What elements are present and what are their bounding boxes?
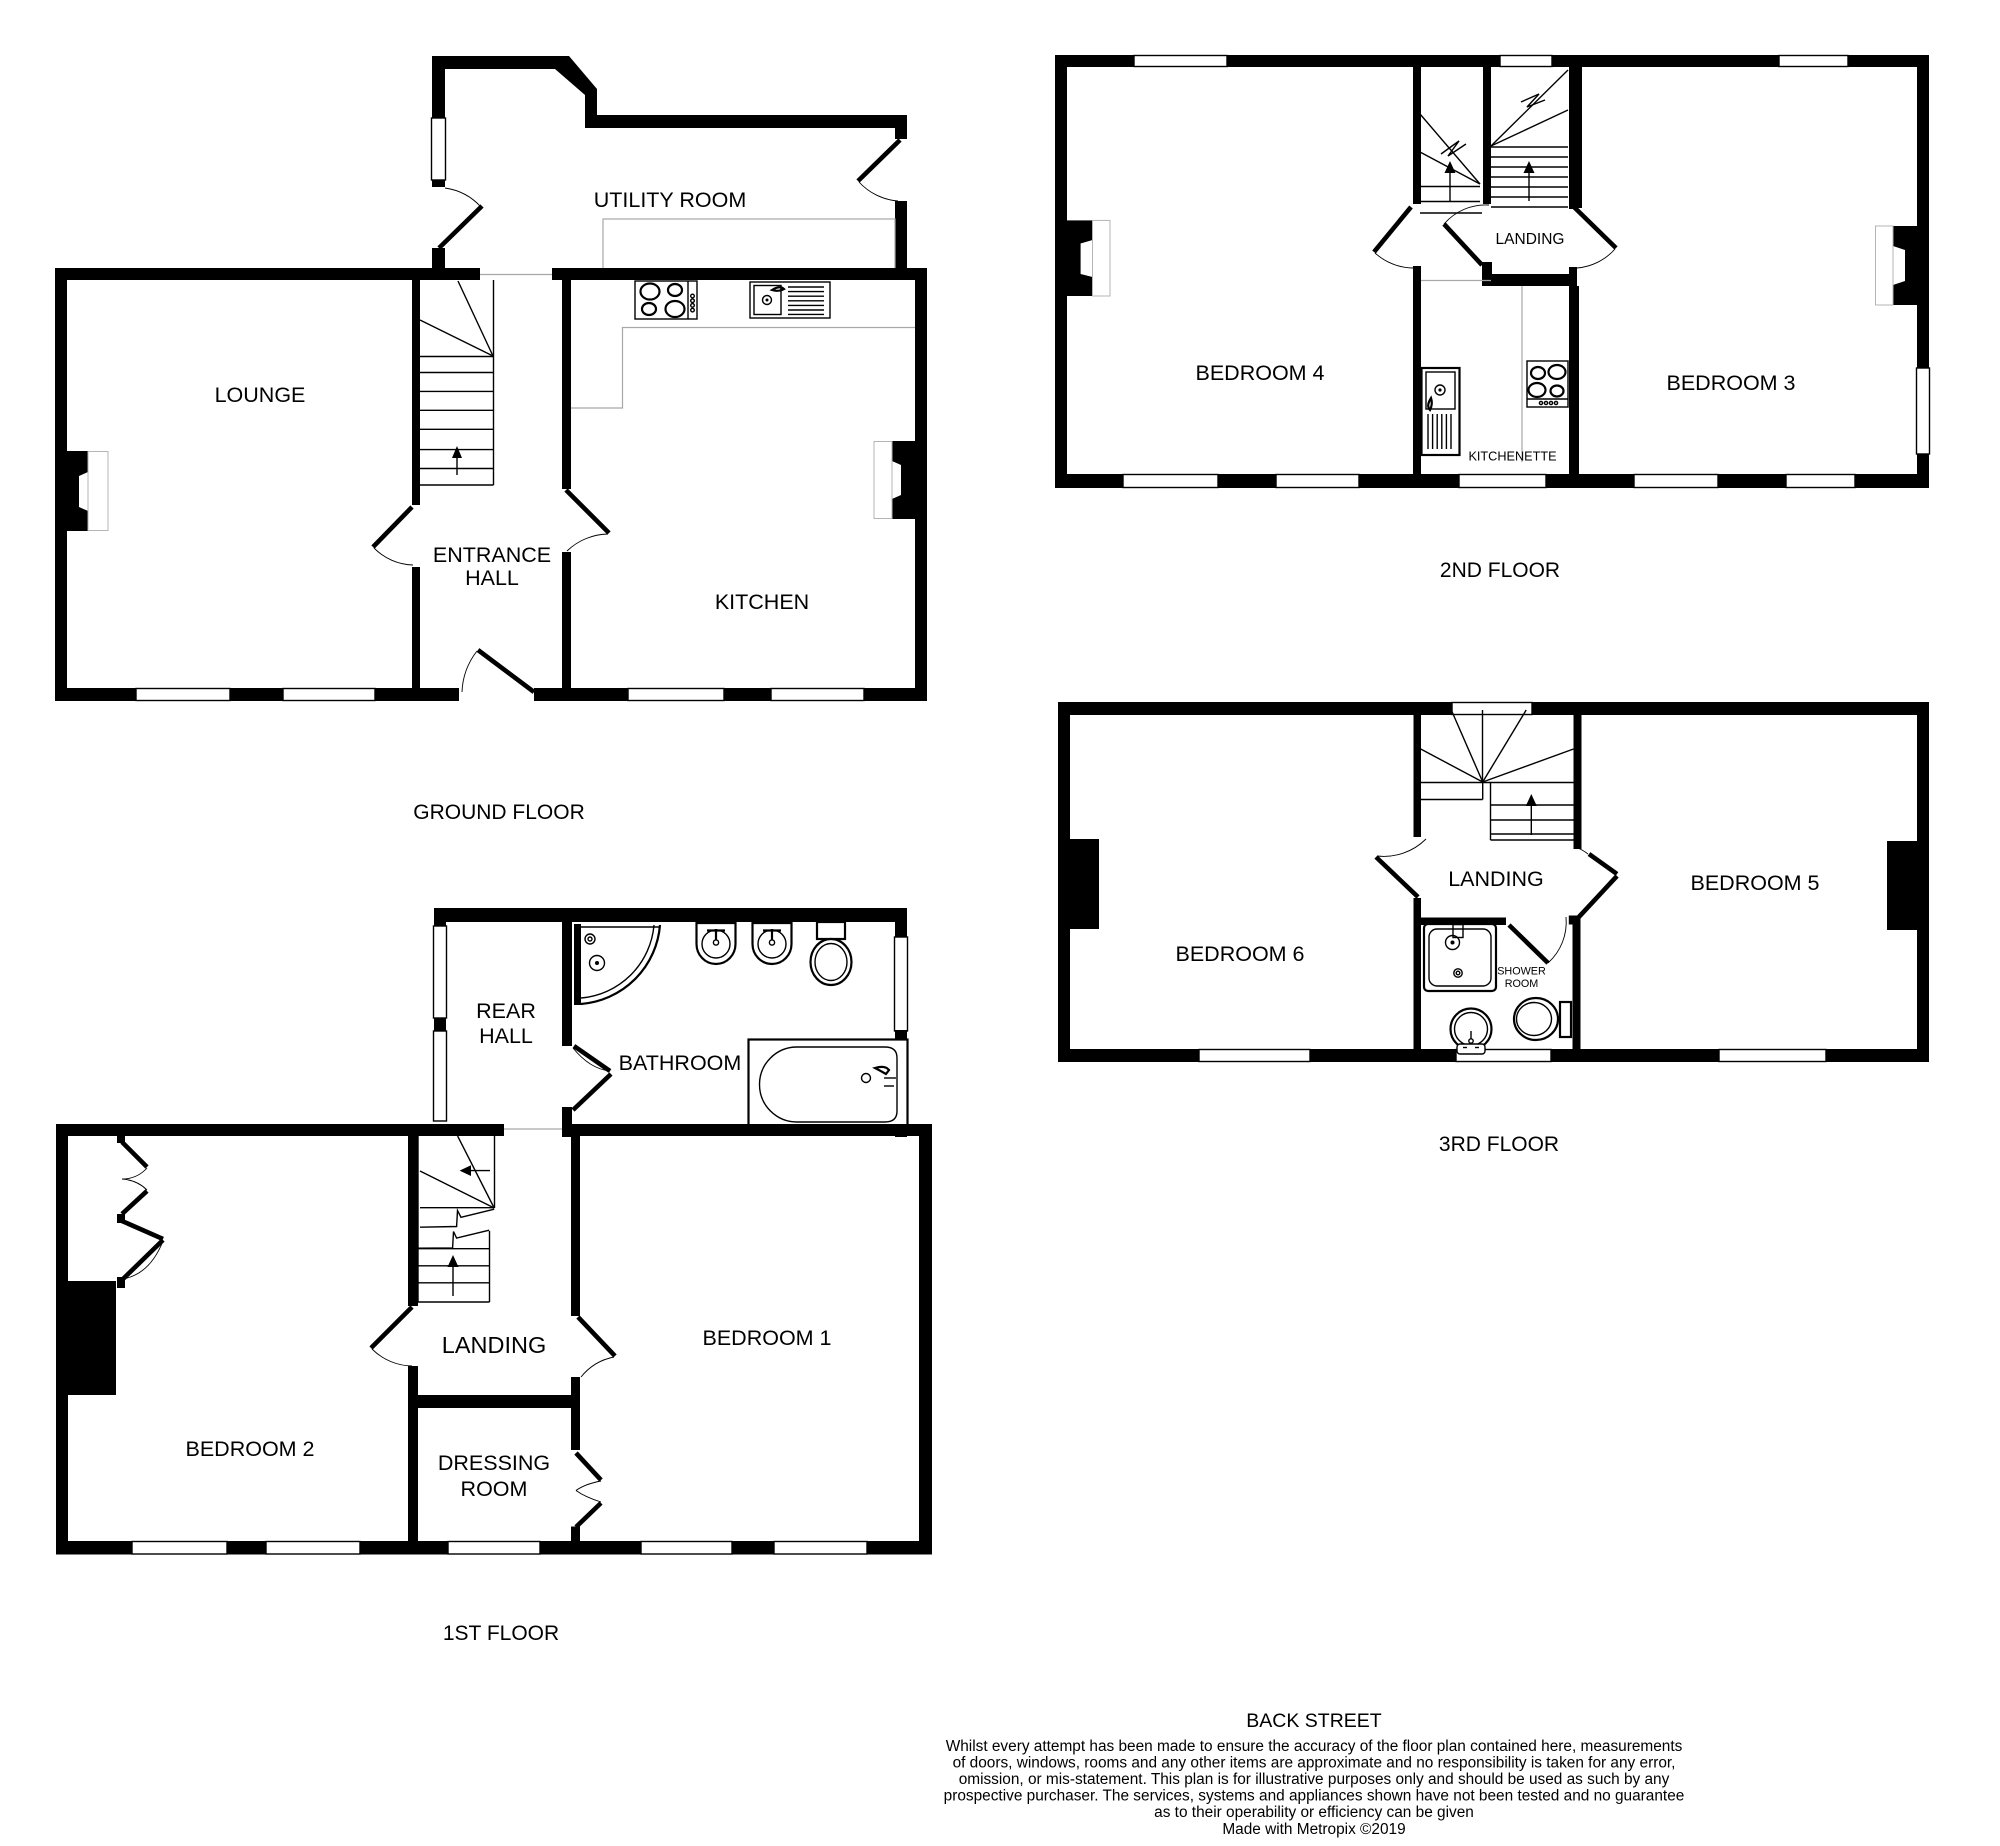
svg-text:prospective purchaser. The ser: prospective purchaser. The services, sys… [944,1788,1685,1805]
svg-text:GROUND FLOOR: GROUND FLOOR [413,801,585,824]
svg-text:ENTRANCE: ENTRANCE [433,543,551,567]
svg-text:3RD FLOOR: 3RD FLOOR [1439,1133,1559,1156]
svg-text:BEDROOM 3: BEDROOM 3 [1666,371,1795,395]
svg-text:BEDROOM 6: BEDROOM 6 [1175,942,1304,966]
svg-text:BEDROOM 4: BEDROOM 4 [1195,361,1324,385]
svg-text:UTILITY ROOM: UTILITY ROOM [594,188,747,212]
svg-text:KITCHEN: KITCHEN [715,590,809,614]
svg-text:DRESSING: DRESSING [438,1451,550,1475]
svg-text:LANDING: LANDING [1496,231,1565,248]
svg-text:BACK STREET: BACK STREET [1246,1710,1382,1732]
svg-text:1ST FLOOR: 1ST FLOOR [443,1622,559,1645]
svg-text:Whilst every attempt has been: Whilst every attempt has been made to en… [946,1738,1683,1755]
svg-text:KITCHENETTE: KITCHENETTE [1468,450,1556,464]
svg-text:BEDROOM 2: BEDROOM 2 [185,1437,314,1461]
svg-text:REAR: REAR [476,999,536,1023]
svg-text:SHOWER: SHOWER [1497,966,1546,978]
svg-text:omission, or mis-statement. Th: omission, or mis-statement. This plan is… [959,1771,1670,1788]
svg-text:HALL: HALL [465,566,519,590]
svg-text:Made with Metropix ©2019: Made with Metropix ©2019 [1222,1821,1405,1838]
svg-text:LANDING: LANDING [442,1332,546,1358]
svg-text:ROOM: ROOM [461,1477,528,1501]
svg-text:as to their operability or eff: as to their operability or efficiency ca… [1154,1804,1474,1821]
svg-text:BEDROOM 5: BEDROOM 5 [1690,871,1819,895]
svg-text:of doors, windows, rooms and a: of doors, windows, rooms and any other i… [953,1755,1676,1772]
svg-text:BEDROOM 1: BEDROOM 1 [702,1326,831,1350]
svg-text:HALL: HALL [479,1024,533,1048]
svg-text:LANDING: LANDING [1448,867,1544,891]
svg-text:2ND FLOOR: 2ND FLOOR [1440,559,1560,582]
svg-text:ROOM: ROOM [1505,978,1539,990]
svg-text:LOUNGE: LOUNGE [215,383,306,407]
svg-text:BATHROOM: BATHROOM [619,1051,742,1075]
